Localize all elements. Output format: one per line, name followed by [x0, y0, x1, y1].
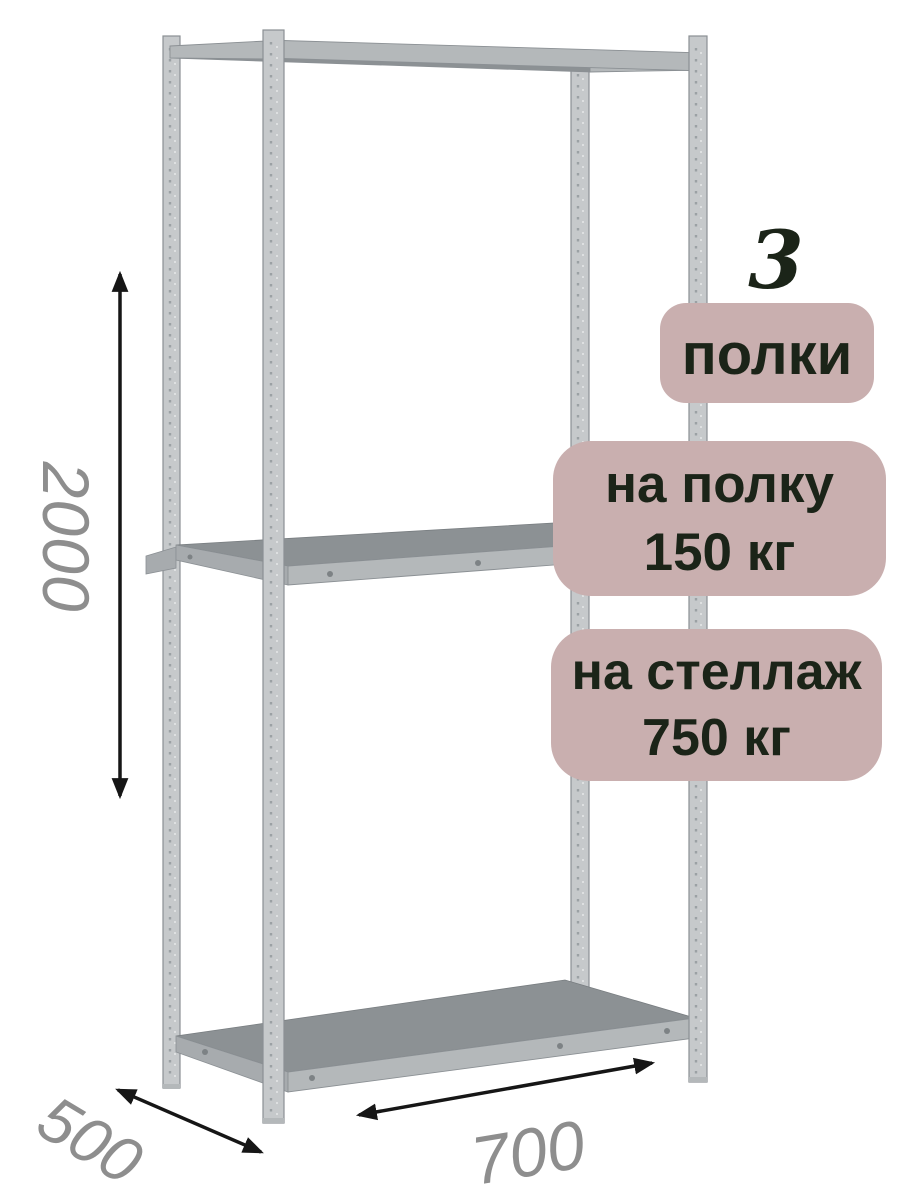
- shelf-count-number: 3: [716, 220, 836, 300]
- shelf-count-badge: полки: [660, 303, 874, 403]
- shelf-load-badge: на полку 150 кг: [553, 441, 886, 596]
- rack-post-front-left: [263, 30, 284, 1123]
- product-image: 2000 500 700 3 полки на полку 150 кг на …: [0, 0, 900, 1200]
- top-beam-left: [170, 41, 266, 59]
- rack-load-line2: 750 кг: [551, 705, 882, 771]
- shelf-load-line2: 150 кг: [553, 519, 886, 586]
- bottom-shelf: [176, 980, 695, 1092]
- height-dimension-label: 2000: [33, 427, 99, 647]
- shelf-count-label: полки: [682, 322, 853, 387]
- rack-load-line1: на стеллаж: [551, 639, 882, 705]
- rack-load-badge: на стеллаж 750 кг: [551, 629, 882, 781]
- rack-top-frame: [170, 40, 706, 72]
- shelf-load-line1: на полку: [553, 451, 886, 518]
- rack-illustration: [0, 0, 900, 1200]
